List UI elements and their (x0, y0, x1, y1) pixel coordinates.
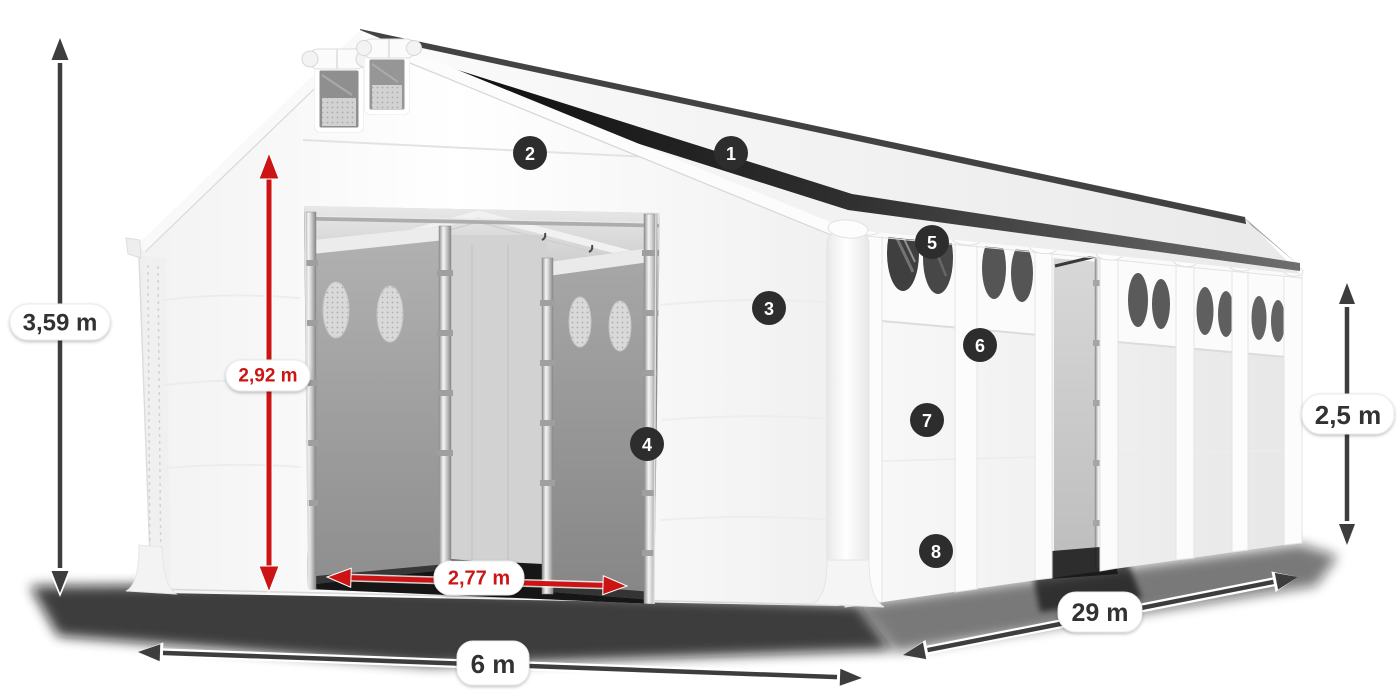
front-width-value: 6 m (471, 649, 516, 679)
interior-partition-right (548, 248, 653, 600)
dimension-label-side-length: 29 m (1058, 592, 1142, 632)
badge-number: 7 (922, 411, 932, 431)
dimension-label-entrance-height: 2,92 m (226, 360, 310, 391)
partition-pole (439, 226, 451, 576)
partition-window (569, 297, 591, 347)
badge-number: 1 (726, 144, 736, 164)
partition-window (609, 301, 631, 351)
dimension-label-front-width: 6 m (457, 641, 529, 685)
badge-number: 5 (927, 233, 937, 253)
interior-corridor (447, 235, 547, 575)
entrance-width-value: 2,77 m (448, 568, 510, 590)
feature-badge-8[interactable]: 8 (919, 534, 953, 568)
partition-window (323, 282, 349, 338)
total-height-value: 3,59 m (23, 310, 98, 337)
entrance-opening (300, 200, 665, 610)
badge-number: 6 (975, 336, 985, 356)
tent-illustration: 3,59 m 2,92 m 2,77 m 6 m 29 m 2,5 m 1 2 … (0, 0, 1400, 700)
badge-number: 2 (525, 144, 535, 164)
dimension-label-total-height: 3,59 m (10, 304, 110, 340)
side-length-value: 29 m (1072, 599, 1129, 627)
partition-window (377, 286, 403, 342)
feature-badge-1[interactable]: 1 (714, 136, 748, 170)
feature-badge-4[interactable]: 4 (630, 427, 664, 461)
interior-partition-left (312, 226, 447, 584)
feature-badge-3[interactable]: 3 (752, 291, 786, 325)
badge-number: 4 (642, 435, 652, 455)
feature-badge-7[interactable]: 7 (910, 403, 944, 437)
badge-number: 8 (931, 542, 941, 562)
eave-overhang (126, 238, 141, 258)
entrance-height-value: 2,92 m (238, 366, 297, 387)
dimension-label-wall-height: 2,5 m (1302, 394, 1394, 434)
badge-number: 3 (764, 299, 774, 319)
feature-badge-5[interactable]: 5 (915, 225, 949, 259)
wall-height-value: 2,5 m (1315, 400, 1382, 430)
tent-product-diagram: 3,59 m 2,92 m 2,77 m 6 m 29 m 2,5 m 1 2 … (0, 0, 1400, 700)
feature-badge-2[interactable]: 2 (513, 136, 547, 170)
feature-badge-6[interactable]: 6 (963, 328, 997, 362)
dimension-label-entrance-width: 2,77 m (434, 561, 524, 595)
